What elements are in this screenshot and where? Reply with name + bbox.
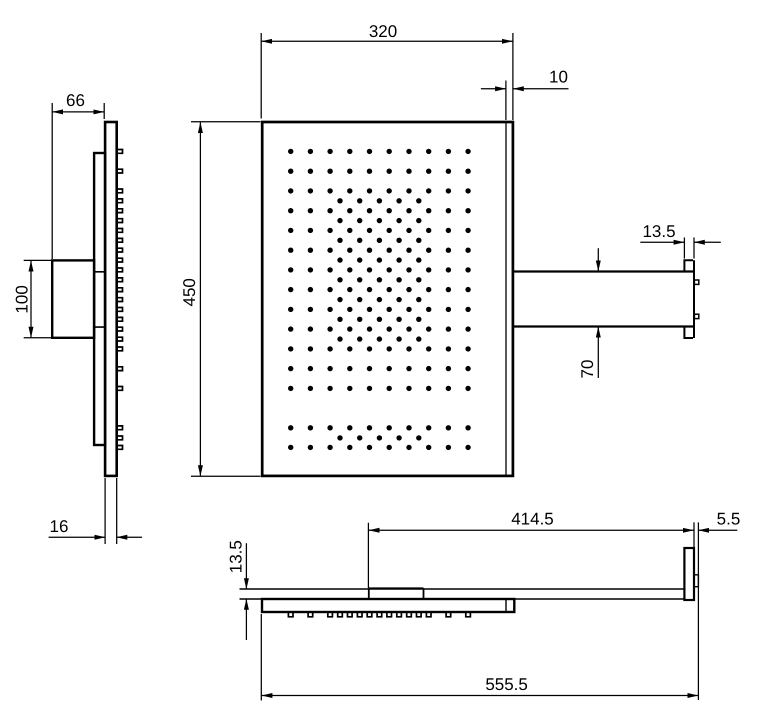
svg-text:66: 66 <box>66 91 85 110</box>
svg-text:10: 10 <box>549 68 568 87</box>
svg-text:555.5: 555.5 <box>485 675 528 694</box>
svg-text:5.5: 5.5 <box>717 510 741 529</box>
svg-text:414.5: 414.5 <box>511 510 554 529</box>
svg-text:320: 320 <box>369 22 397 41</box>
svg-text:13.5: 13.5 <box>642 222 675 241</box>
svg-text:450: 450 <box>180 278 199 306</box>
svg-text:100: 100 <box>12 285 31 313</box>
svg-text:13.5: 13.5 <box>226 540 245 573</box>
svg-text:70: 70 <box>578 360 597 379</box>
svg-text:16: 16 <box>50 517 69 536</box>
